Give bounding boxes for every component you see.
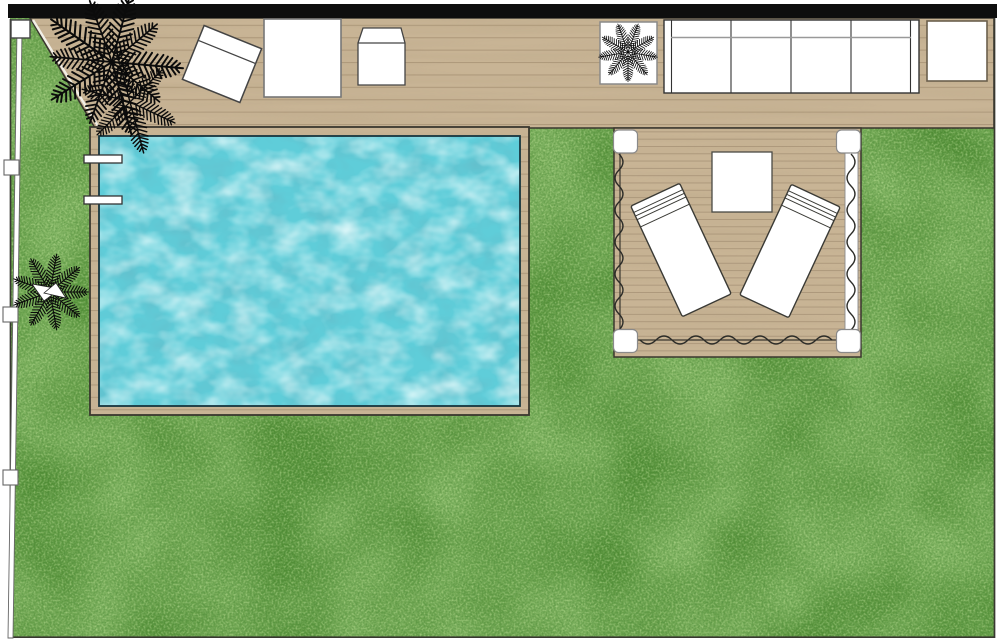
fence-post bbox=[4, 160, 19, 175]
fence-post bbox=[3, 307, 18, 322]
pergola-post bbox=[614, 330, 638, 353]
backyard-plan bbox=[0, 0, 1000, 644]
armchair[interactable] bbox=[358, 28, 405, 85]
pergola-post bbox=[837, 130, 861, 153]
side-table[interactable] bbox=[927, 21, 987, 81]
pergola-table[interactable] bbox=[712, 152, 772, 212]
swimming-pool[interactable] bbox=[90, 127, 529, 415]
pool-water bbox=[94, 131, 526, 413]
outdoor-sofa[interactable] bbox=[664, 20, 919, 93]
fence-post bbox=[11, 20, 30, 38]
outdoor-table[interactable] bbox=[264, 19, 341, 97]
fence-post bbox=[3, 470, 18, 485]
floorplan-canvas bbox=[0, 0, 1000, 644]
pergola-post bbox=[614, 130, 638, 153]
pergola-post bbox=[837, 330, 861, 353]
top-wall bbox=[8, 4, 997, 18]
